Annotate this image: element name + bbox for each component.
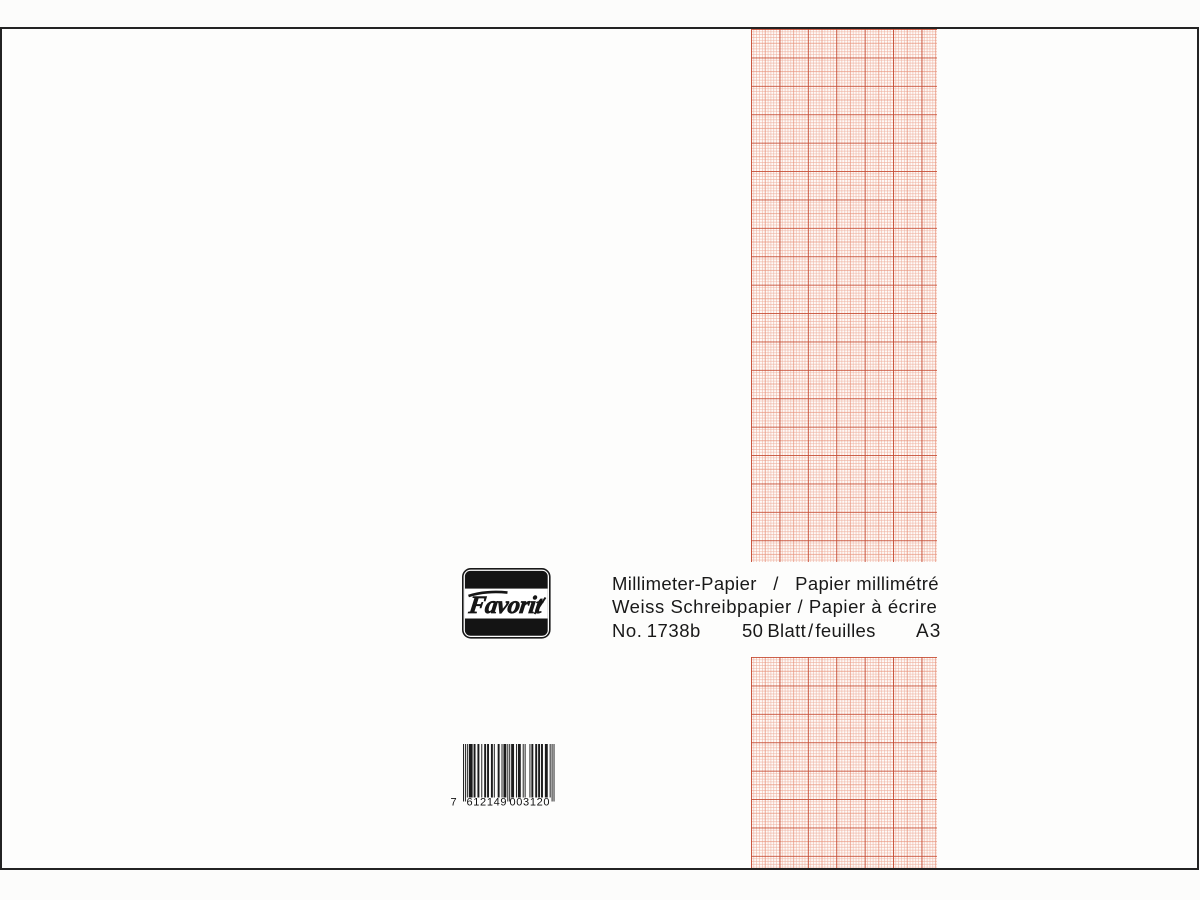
svg-text:612149: 612149 [467, 797, 507, 809]
svg-text:003120: 003120 [510, 797, 550, 809]
svg-text:Favorit: Favorit [466, 592, 545, 619]
svg-text:7: 7 [451, 797, 457, 809]
